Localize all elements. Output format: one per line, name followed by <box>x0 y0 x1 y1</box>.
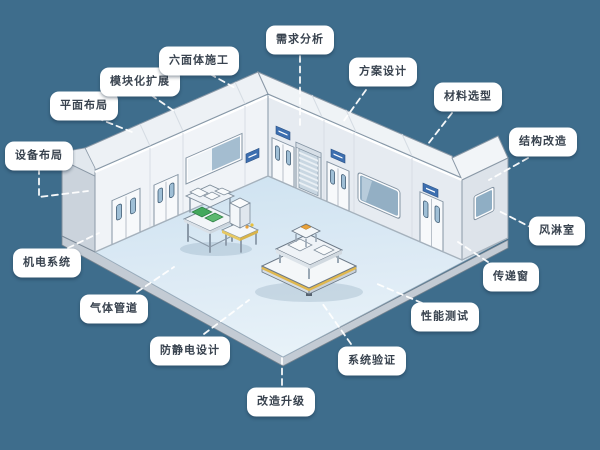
door-window <box>117 203 122 220</box>
leader-line <box>428 113 452 144</box>
cleanroom-infographic: 需求分析 方案设计 材料选型 结构改造 风淋室 传递窗 性能测试 系统验证 改造… <box>0 0 600 450</box>
door-window <box>276 145 280 161</box>
callout-mep-systems: 机电系统 <box>13 249 81 278</box>
callout-system-validation: 系统验证 <box>338 347 406 376</box>
callout-equipment-layout: 设备布局 <box>5 142 73 171</box>
door-window <box>424 200 429 218</box>
callout-solution-design: 方案设计 <box>349 58 417 87</box>
door-window <box>131 197 136 214</box>
callout-performance-test: 性能测试 <box>411 303 479 332</box>
callout-anti-static-design: 防静电设计 <box>150 337 230 366</box>
door-window <box>435 205 440 223</box>
callout-air-shower: 风淋室 <box>529 217 585 246</box>
door-window <box>287 150 291 166</box>
door-window <box>342 174 346 190</box>
callout-pass-box: 传递窗 <box>483 263 539 292</box>
small-part <box>245 225 248 228</box>
callout-hexahedral-construction: 六面体施工 <box>159 47 239 76</box>
callout-material-selection: 材料选型 <box>434 83 502 112</box>
callout-structural-modification: 结构改造 <box>509 128 577 157</box>
small-part <box>250 223 253 226</box>
door-window <box>158 187 163 203</box>
leader-line <box>151 95 174 111</box>
cleanroom-illustration <box>0 0 600 450</box>
callout-renovation-upgrade: 改造升级 <box>247 388 315 417</box>
door-window <box>170 182 175 198</box>
door-window <box>331 169 335 185</box>
callout-gas-piping: 气体管道 <box>80 295 148 324</box>
callout-requirement-analysis: 需求分析 <box>266 26 334 55</box>
